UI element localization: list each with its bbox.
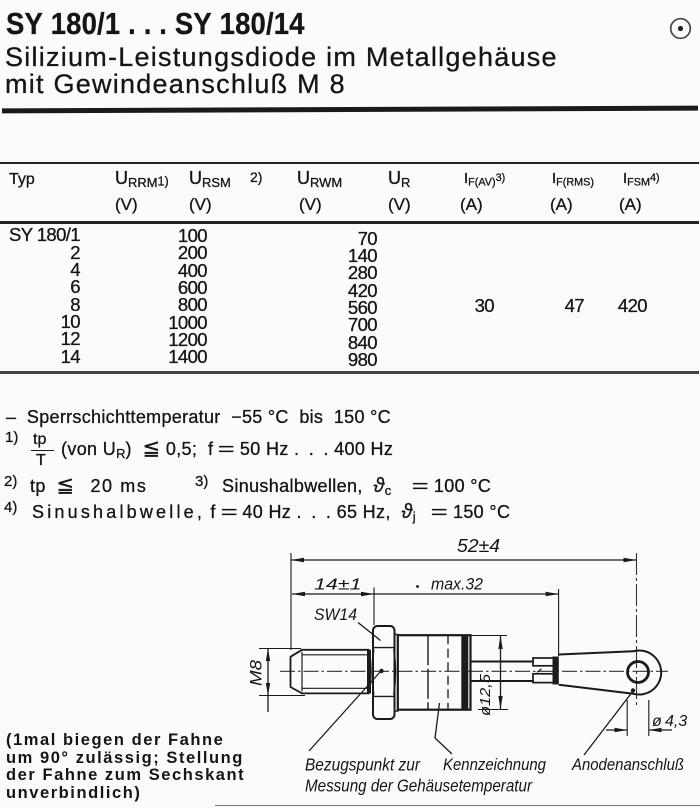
svg-text:ø 4,3: ø 4,3 bbox=[652, 713, 687, 730]
svg-text:M8: M8 bbox=[248, 659, 266, 686]
svg-text:14±1: 14±1 bbox=[314, 577, 362, 594]
svg-text:52±4: 52±4 bbox=[457, 536, 500, 556]
svg-text:Kennzeichnung: Kennzeichnung bbox=[443, 755, 546, 774]
svg-text:SW14: SW14 bbox=[314, 606, 357, 624]
svg-text:ø12,5: ø12,5 bbox=[478, 673, 494, 716]
svg-text:Bezugspunkt zur: Bezugspunkt zur bbox=[305, 755, 421, 775]
svg-text:Messung der Gehäusetemperatur: Messung der Gehäusetemperatur bbox=[305, 776, 533, 796]
svg-text:Anodenanschluß: Anodenanschluß bbox=[571, 755, 684, 774]
svg-text:max.32: max.32 bbox=[431, 575, 484, 594]
